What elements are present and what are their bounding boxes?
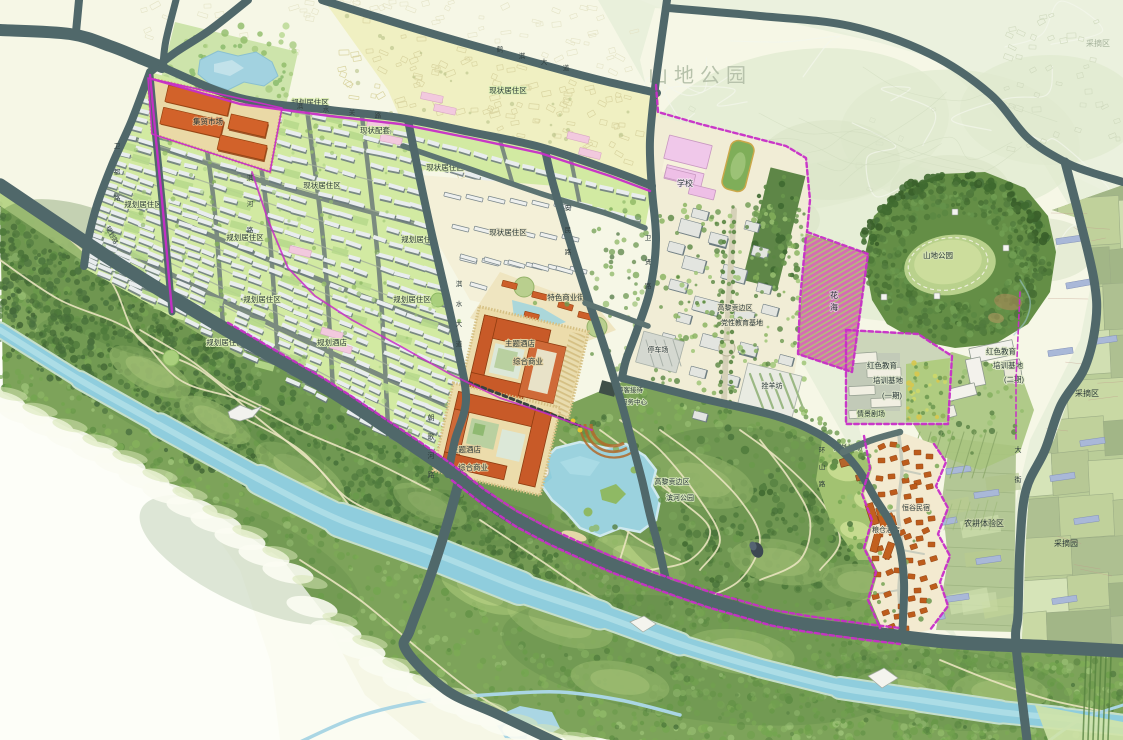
svg-text:采摘园: 采摘园	[1054, 538, 1078, 548]
svg-text:情景剧场: 情景剧场	[857, 409, 885, 418]
svg-text:高黎贡边区: 高黎贡边区	[655, 477, 690, 486]
svg-text:采摘区: 采摘区	[1075, 388, 1099, 398]
svg-text:山地公园: 山地公园	[923, 250, 953, 260]
svg-text:培训基地: 培训基地	[993, 360, 1023, 370]
svg-text:培训基地: 培训基地	[873, 375, 903, 385]
svg-text:农耕体验区: 农耕体验区	[964, 518, 1004, 528]
svg-text:(二期): (二期)	[1004, 375, 1024, 384]
svg-text:滨河公园: 滨河公园	[666, 493, 694, 502]
svg-text:红色教育: 红色教育	[867, 360, 897, 370]
svg-text:采摘区: 采摘区	[1086, 38, 1110, 48]
svg-text:红色教育: 红色教育	[986, 346, 1016, 356]
svg-text:山地公园: 山地公园	[648, 64, 752, 87]
svg-text:(一期): (一期)	[882, 391, 902, 400]
svg-text:恒谷民宿: 恒谷民宿	[902, 503, 930, 512]
